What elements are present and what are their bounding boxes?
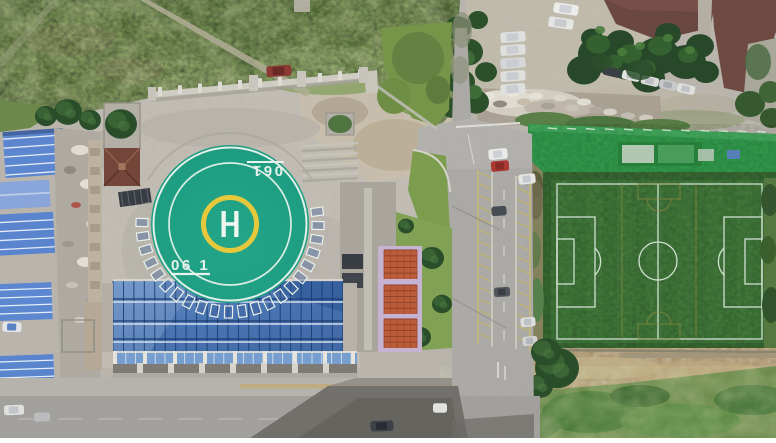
svg-text:06 1: 06 1 [171,257,210,274]
svg-text:061: 061 [250,162,283,179]
